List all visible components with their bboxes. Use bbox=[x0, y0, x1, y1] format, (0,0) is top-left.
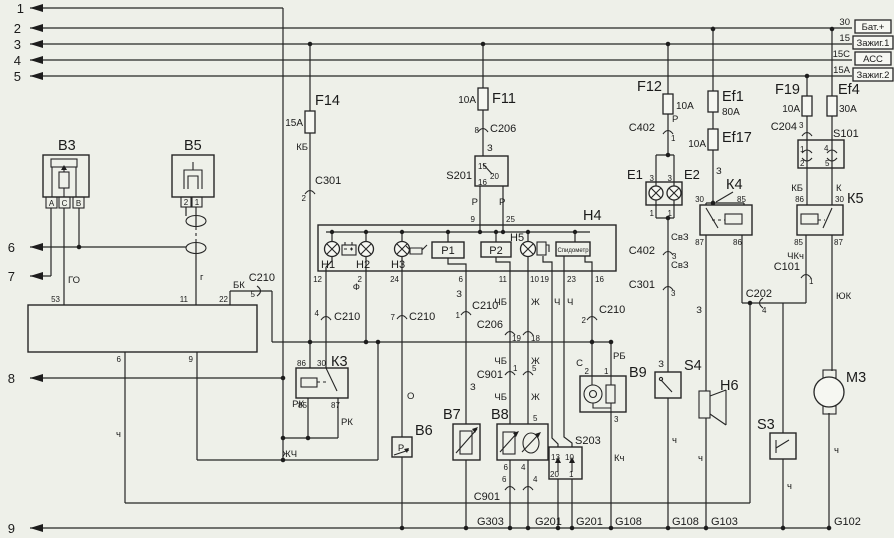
label-h3: H3 bbox=[391, 259, 405, 271]
s101-pin: 4 bbox=[824, 144, 829, 153]
ecu-pin: 11 bbox=[180, 295, 189, 304]
fuse-ef4 bbox=[827, 96, 837, 116]
wiring-diagram: 1 2 3 4 5 6 7 8 9 30 15 15C 15A Бат.+ За… bbox=[0, 0, 894, 538]
wire-color: З bbox=[716, 166, 722, 177]
relay-pin: 30 bbox=[695, 195, 704, 204]
wire-runs-center bbox=[125, 44, 750, 528]
label-c402: C402 bbox=[629, 245, 655, 257]
b5-terminal: 1 bbox=[195, 198, 200, 207]
h4-pin: 25 bbox=[506, 215, 515, 224]
wire-color: РБ bbox=[613, 351, 626, 362]
label-p2: P2 bbox=[489, 245, 502, 257]
wire-color: З bbox=[487, 143, 493, 154]
fuse-ef1 bbox=[708, 91, 718, 112]
h4-pin: 12 bbox=[313, 275, 322, 284]
h4-pin: 9 bbox=[471, 215, 476, 224]
wire-color: ЧКч bbox=[787, 251, 804, 262]
b6-pressure-letter: Р bbox=[398, 443, 404, 454]
wire-color: Ч bbox=[567, 297, 573, 308]
wire-color: Ж bbox=[531, 297, 540, 308]
horn-icon bbox=[699, 390, 726, 425]
ecu-pin: 22 bbox=[219, 295, 228, 304]
s203-pin: 20 bbox=[550, 470, 559, 479]
connector-pin: 4 bbox=[762, 306, 767, 315]
label-c206: C206 bbox=[490, 123, 516, 135]
connector-pin: 4 bbox=[533, 475, 538, 484]
h4-pin: 11 bbox=[499, 275, 508, 284]
line-number: 2 bbox=[14, 21, 21, 36]
label-k5: К5 bbox=[847, 191, 864, 207]
relay-pin: 87 bbox=[331, 401, 340, 410]
bus-box-bat: Бат.+ bbox=[862, 22, 885, 33]
wire-color: ЧБ bbox=[494, 297, 507, 308]
label-c204: C204 bbox=[771, 121, 797, 133]
wire-color: Ч bbox=[554, 297, 560, 308]
ground-label: G303 bbox=[477, 516, 504, 528]
wire-color: КБ bbox=[296, 142, 308, 153]
line-number: 9 bbox=[8, 521, 15, 536]
wire-color: БК bbox=[233, 280, 245, 291]
connector-pin: 1 bbox=[809, 277, 814, 286]
fuse-bodies bbox=[305, 88, 837, 150]
label-b6: B6 bbox=[415, 423, 433, 439]
wire-color: ЖЧ bbox=[282, 449, 297, 460]
fuse-rating: 30А bbox=[839, 104, 857, 115]
label-b3: B3 bbox=[58, 138, 76, 154]
label-s4: S4 bbox=[684, 358, 702, 374]
wire-color: г bbox=[200, 272, 204, 283]
label-s3: S3 bbox=[757, 417, 775, 433]
relay-pin: 30 bbox=[835, 195, 844, 204]
connector-pin: 1 bbox=[513, 364, 518, 373]
connector-pin: 1 bbox=[456, 311, 461, 320]
label-f12: F12 bbox=[637, 79, 662, 95]
fuse-f11 bbox=[478, 88, 488, 110]
label-c301: C301 bbox=[629, 279, 655, 291]
label-ef1: Ef1 bbox=[722, 89, 744, 105]
wire-color: К bbox=[836, 183, 842, 194]
label-p1: P1 bbox=[441, 245, 454, 257]
fuse-rating: 15А bbox=[285, 118, 303, 129]
label-b7: B7 bbox=[443, 407, 461, 423]
wire-color: ЧБ bbox=[494, 356, 507, 367]
e-pin: 1 bbox=[668, 209, 673, 218]
fuse-rating: 80А bbox=[722, 107, 740, 118]
k4-box bbox=[700, 205, 752, 235]
ecu-pin: 6 bbox=[117, 355, 122, 364]
e-pin: 1 bbox=[650, 209, 655, 218]
h4-pin: 23 bbox=[567, 275, 576, 284]
label-c402: C402 bbox=[629, 122, 655, 134]
label-c210: C210 bbox=[409, 311, 435, 323]
wire-color: КБ bbox=[791, 183, 803, 194]
wire-color: ЮК bbox=[836, 291, 852, 302]
k4-pointer-line bbox=[716, 192, 733, 202]
s101-pin: 5 bbox=[825, 159, 830, 168]
ground-label: G108 bbox=[672, 516, 699, 528]
e-pin: 3 bbox=[650, 174, 655, 183]
connector-pin: 2 bbox=[582, 316, 587, 325]
b5-terminal: 2 bbox=[184, 198, 189, 207]
label-c101: C101 bbox=[774, 261, 800, 273]
connector-pin: 18 bbox=[531, 334, 540, 343]
label-b9: B9 bbox=[629, 365, 647, 381]
wire-color: ГО bbox=[68, 275, 80, 286]
h4-pin: 24 bbox=[390, 275, 399, 284]
wire-color: З bbox=[696, 305, 702, 316]
h4-pin: 16 bbox=[595, 275, 604, 284]
label-c901: C901 bbox=[477, 369, 503, 381]
ground-label: G103 bbox=[711, 516, 738, 528]
connector-pin: 19 bbox=[512, 334, 521, 343]
b8-pin: 6 bbox=[504, 463, 509, 472]
label-ef4: Ef4 bbox=[838, 82, 860, 98]
s4-box bbox=[655, 372, 681, 398]
relay-pin: 86 bbox=[733, 238, 742, 247]
relay-pin: 86 bbox=[795, 195, 804, 204]
s203-pin: 10 bbox=[565, 453, 574, 462]
fuse-f12 bbox=[663, 94, 673, 114]
b3-terminal: В bbox=[76, 199, 81, 208]
connector-pin: 7 bbox=[391, 313, 396, 322]
b8-pin: 4 bbox=[521, 463, 526, 472]
label-c210: C210 bbox=[599, 304, 625, 316]
bus-box-acc: АСС bbox=[863, 54, 883, 65]
fuse-rating: 10А bbox=[676, 101, 694, 112]
s3-box bbox=[770, 433, 796, 459]
relay-pin: 85 bbox=[794, 238, 803, 247]
ground-label: G201 bbox=[535, 516, 562, 528]
label-f14: F14 bbox=[315, 93, 340, 109]
label-s101: S101 bbox=[833, 128, 859, 140]
label-h6: H6 bbox=[720, 378, 739, 394]
s101-pin: 1 bbox=[800, 145, 805, 154]
wire-color: О bbox=[407, 391, 414, 402]
label-c210: C210 bbox=[249, 272, 275, 284]
wire-color: Р bbox=[472, 197, 478, 208]
line-number: 3 bbox=[14, 37, 21, 52]
label-e1: E1 bbox=[627, 167, 643, 182]
bus-box-ign2: Зажиг.2 bbox=[857, 70, 890, 81]
label-h2: H2 bbox=[356, 259, 370, 271]
relay-pin: 85 bbox=[737, 195, 746, 204]
connector-pin: 1 bbox=[671, 134, 676, 143]
label-h5: H5 bbox=[510, 232, 524, 244]
label-b8: B8 bbox=[491, 407, 509, 423]
s203-pin: 1 bbox=[569, 470, 574, 479]
label-k3: К3 bbox=[331, 354, 348, 370]
b9-pin: 3 bbox=[614, 415, 619, 424]
label-f11: F11 bbox=[492, 91, 516, 107]
label-c301: C301 bbox=[315, 175, 341, 187]
fuse-f14 bbox=[305, 111, 315, 133]
direction-arrows bbox=[30, 4, 43, 532]
wire-color: ч bbox=[787, 481, 792, 492]
wire-color: З bbox=[456, 289, 462, 300]
left-arrowheads bbox=[30, 4, 43, 532]
connector-pin: 5 bbox=[251, 290, 256, 299]
wire-color: ЧБ bbox=[494, 392, 507, 403]
bus-terminal-15a: 15A bbox=[833, 65, 851, 76]
fuse-f19 bbox=[802, 96, 812, 116]
b8-pin: 5 bbox=[533, 414, 538, 423]
wiring-diagram-page: 1 2 3 4 5 6 7 8 9 30 15 15C 15A Бат.+ За… bbox=[0, 0, 894, 538]
connector-pin: 6 bbox=[502, 475, 507, 484]
s201-pin: 15 bbox=[478, 162, 487, 171]
fuse-rating: 10А bbox=[458, 95, 476, 106]
line-number: 6 bbox=[8, 240, 15, 255]
line-number: 1 bbox=[17, 1, 24, 16]
ecu-pin: 53 bbox=[51, 295, 60, 304]
relay-pin: 87 bbox=[834, 238, 843, 247]
s201-pin: 20 bbox=[490, 172, 499, 181]
h4-pin: 6 bbox=[459, 275, 464, 284]
label-f19: F19 bbox=[775, 82, 800, 98]
ecu-box bbox=[28, 305, 257, 352]
relay-pin: 30 bbox=[317, 359, 326, 368]
line-number: 7 bbox=[8, 269, 15, 284]
b3-terminal: А bbox=[49, 199, 55, 208]
label-c202: C202 bbox=[746, 288, 772, 300]
wire-color: Р bbox=[672, 114, 678, 125]
ecu-pin: 9 bbox=[189, 355, 194, 364]
label-speedometer: Спидометр bbox=[557, 248, 589, 254]
line-number: 5 bbox=[14, 69, 21, 84]
e-pin: 3 bbox=[668, 174, 673, 183]
wire-color: СвЗ bbox=[671, 232, 689, 243]
s101-pin: 2 bbox=[800, 159, 805, 168]
wire-color: РК bbox=[292, 399, 304, 410]
label-e2: E2 bbox=[684, 167, 700, 182]
line-number: 8 bbox=[8, 371, 15, 386]
label-c210: C210 bbox=[334, 311, 360, 323]
wire-color: СвЗ bbox=[671, 260, 689, 271]
fuse-rating: 10А bbox=[782, 104, 800, 115]
label-s203: S203 bbox=[575, 435, 601, 447]
wire-color: Кч bbox=[614, 453, 625, 464]
wire-color: З bbox=[658, 359, 664, 370]
wire-color: Р bbox=[499, 197, 505, 208]
label-b5: B5 bbox=[184, 138, 202, 154]
label-m3: М3 bbox=[846, 370, 866, 386]
label-k4: К4 bbox=[726, 177, 743, 193]
ground-label: G108 bbox=[615, 516, 642, 528]
ground-label: G201 bbox=[576, 516, 603, 528]
connector-pin: 3 bbox=[671, 289, 676, 298]
b3-box bbox=[43, 155, 89, 197]
wire-color: РК bbox=[341, 417, 353, 428]
relay-pin: 86 bbox=[297, 359, 306, 368]
h4-pin: 10 bbox=[530, 275, 539, 284]
bus-box-ign1: Зажиг.1 bbox=[857, 38, 890, 49]
label-s201: S201 bbox=[446, 170, 472, 182]
fuse-ef17 bbox=[708, 129, 718, 150]
label-c901: C901 bbox=[474, 491, 500, 503]
b9-box bbox=[580, 376, 626, 412]
bus-terminal-15: 15 bbox=[839, 33, 850, 44]
s101-box bbox=[798, 140, 844, 168]
wire-color: ч bbox=[672, 435, 677, 446]
h4-pin: 19 bbox=[540, 275, 549, 284]
connector-pin: 2 bbox=[302, 194, 307, 203]
b9-pin: 1 bbox=[604, 367, 609, 376]
fuse-rating: 10А bbox=[688, 139, 706, 150]
wire-color: ч bbox=[698, 453, 703, 464]
label-h4: H4 bbox=[583, 208, 602, 224]
b9-pin: 2 bbox=[585, 367, 590, 376]
label-c206: C206 bbox=[477, 319, 503, 331]
wire-color: Ф bbox=[353, 282, 360, 293]
connector-pin: 4 bbox=[315, 309, 320, 318]
s201-pin: 16 bbox=[478, 178, 487, 187]
motor-icon bbox=[814, 370, 844, 414]
wire-color: С bbox=[576, 358, 583, 369]
k3-box bbox=[296, 368, 348, 398]
wire-color: ч bbox=[834, 445, 839, 456]
wire-color: З bbox=[470, 382, 476, 393]
label-h1: H1 bbox=[321, 259, 335, 271]
connector-pin: 8 bbox=[475, 126, 480, 135]
b3-terminal: С bbox=[62, 199, 68, 208]
label-ef17: Ef17 bbox=[722, 130, 752, 146]
line-number: 4 bbox=[14, 53, 21, 68]
wire-color: Ж bbox=[531, 356, 540, 367]
bus-terminal-15c: 15C bbox=[833, 49, 851, 60]
ground-label: G102 bbox=[834, 516, 861, 528]
wire-color: Ж bbox=[531, 392, 540, 403]
relay-pin: 87 bbox=[695, 238, 704, 247]
bus-terminal-30: 30 bbox=[839, 17, 850, 28]
wire-color: ч bbox=[116, 429, 121, 440]
s203-pin: 13 bbox=[551, 453, 560, 462]
connector-pin: 3 bbox=[799, 121, 804, 130]
